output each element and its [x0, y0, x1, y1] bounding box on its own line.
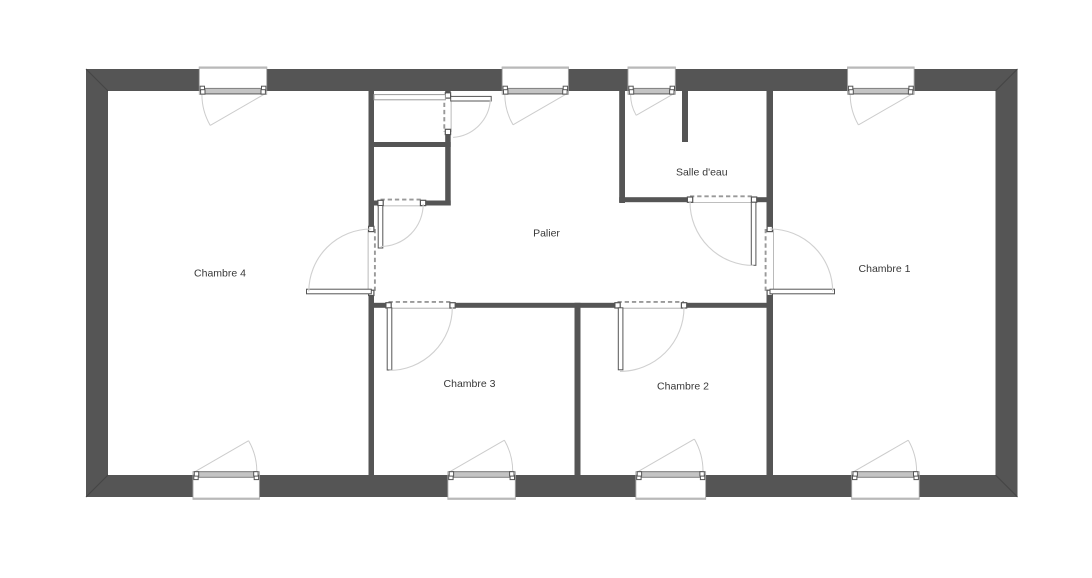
svg-text:Chambre 2: Chambre 2 — [657, 381, 709, 393]
svg-text:Chambre 1: Chambre 1 — [859, 263, 911, 275]
svg-text:Palier: Palier — [533, 228, 560, 240]
svg-text:Salle d'eau: Salle d'eau — [676, 166, 728, 178]
svg-text:Chambre 3: Chambre 3 — [444, 378, 496, 390]
svg-text:Chambre 4: Chambre 4 — [194, 268, 246, 280]
